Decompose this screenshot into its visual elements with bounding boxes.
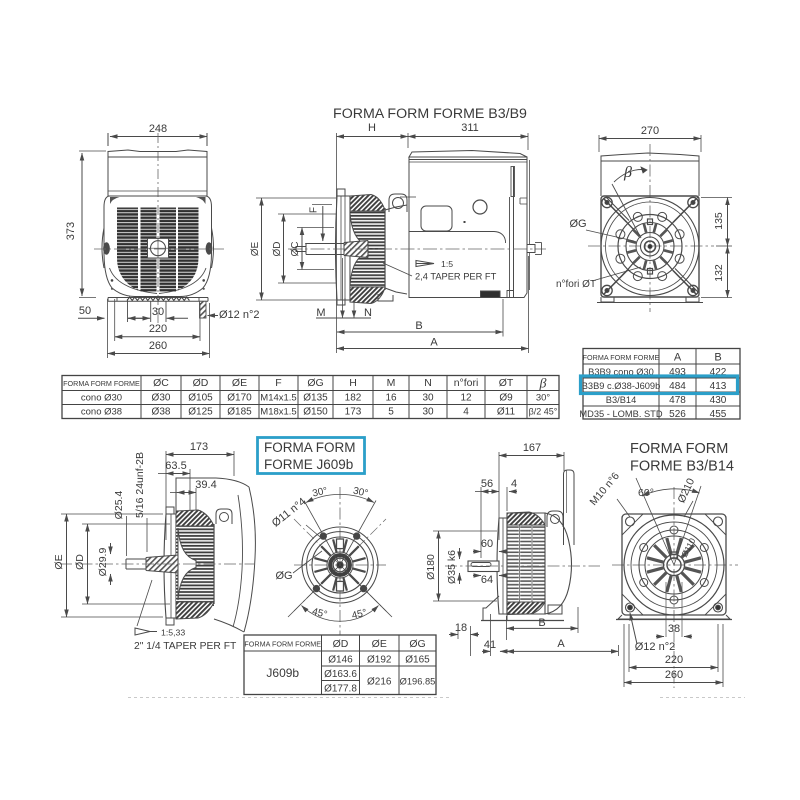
svg-text:260: 260 (665, 669, 683, 681)
svg-text:30°: 30° (536, 393, 551, 404)
svg-text:5/16 24unf-2B: 5/16 24unf-2B (134, 452, 146, 518)
svg-text:β: β (539, 377, 547, 392)
svg-text:FORMA FORM FORME: FORMA FORM FORME (63, 379, 140, 388)
svg-text:M: M (316, 307, 325, 319)
svg-text:270: 270 (641, 125, 659, 137)
svg-text:478: 478 (669, 395, 686, 406)
svg-text:J609b: J609b (266, 666, 299, 680)
svg-text:Ø38: Ø38 (152, 407, 171, 418)
svg-text:B: B (714, 352, 721, 364)
svg-text:A: A (430, 337, 438, 349)
svg-text:Ø135: Ø135 (303, 393, 328, 404)
svg-text:ØC: ØC (153, 377, 169, 389)
svg-text:167: 167 (523, 442, 541, 454)
svg-text:38: 38 (668, 623, 680, 635)
svg-text:M14x1.5: M14x1.5 (260, 393, 296, 404)
svg-text:FORMA FORM FORME: FORMA FORM FORME (583, 353, 660, 362)
svg-text:ØT: ØT (499, 377, 514, 389)
svg-text:Ø146: Ø146 (328, 655, 353, 666)
svg-text:63.5: 63.5 (165, 460, 186, 472)
svg-text:F: F (309, 207, 320, 213)
svg-text:ØG: ØG (569, 218, 586, 230)
svg-text:12: 12 (460, 393, 472, 404)
svg-text:ØE: ØE (250, 241, 261, 256)
svg-text:430: 430 (710, 395, 727, 406)
svg-text:Ø105: Ø105 (188, 393, 213, 404)
svg-text:H: H (368, 122, 376, 134)
svg-text:220: 220 (665, 654, 683, 666)
svg-text:18: 18 (455, 622, 467, 634)
svg-text:173: 173 (345, 407, 362, 418)
svg-text:39.4: 39.4 (195, 479, 216, 491)
svg-text:Ø150: Ø150 (303, 407, 328, 418)
svg-text:1:5,33: 1:5,33 (161, 628, 185, 638)
svg-text:n°fori ØT: n°fori ØT (556, 279, 596, 290)
svg-text:220: 220 (149, 323, 167, 335)
svg-text:64: 64 (481, 574, 493, 586)
svg-text:30: 30 (422, 407, 434, 418)
svg-text:2" 1/4 TAPER PER FT: 2" 1/4 TAPER PER FT (134, 641, 237, 652)
svg-text:455: 455 (710, 409, 727, 420)
svg-text:ØD: ØD (193, 377, 209, 389)
svg-text:5: 5 (388, 407, 394, 418)
svg-text:cono Ø38: cono Ø38 (81, 407, 122, 418)
svg-text:526: 526 (669, 409, 686, 420)
svg-text:173: 173 (190, 441, 208, 453)
svg-text:Ø192: Ø192 (367, 655, 392, 666)
svg-text:A: A (557, 638, 565, 650)
svg-text:MD35 - LOMB. STD: MD35 - LOMB. STD (579, 409, 662, 419)
svg-text:30: 30 (422, 393, 434, 404)
svg-text:ØE: ØE (232, 377, 247, 389)
svg-text:4: 4 (463, 407, 469, 418)
svg-text:ØD: ØD (74, 554, 86, 570)
svg-text:β/2 45°: β/2 45° (529, 407, 558, 417)
svg-text:Ø177.8: Ø177.8 (324, 684, 357, 695)
svg-text:N: N (364, 307, 372, 319)
svg-text:Ø180: Ø180 (425, 554, 437, 580)
svg-text:Ø30: Ø30 (152, 393, 171, 404)
svg-text:2,4 TAPER PER FT: 2,4 TAPER PER FT (415, 272, 497, 282)
svg-text:B: B (415, 320, 422, 332)
svg-text:FORMA FORM FORME: FORMA FORM FORME (244, 640, 321, 649)
svg-text:ØG: ØG (409, 638, 425, 650)
svg-text:B3B9 c.Ø38-J609b: B3B9 c.Ø38-J609b (582, 381, 661, 391)
svg-text:Ø163.6: Ø163.6 (324, 669, 357, 680)
svg-text:Ø12 n°2: Ø12 n°2 (635, 641, 675, 653)
svg-text:Ø196.85: Ø196.85 (400, 677, 436, 687)
svg-text:Ø9: Ø9 (499, 393, 513, 404)
svg-text:ØC: ØC (290, 242, 301, 257)
svg-text:311: 311 (461, 122, 479, 134)
svg-text:ØG: ØG (275, 570, 292, 582)
svg-text:Ø170: Ø170 (227, 393, 252, 404)
svg-text:182: 182 (345, 393, 362, 404)
svg-text:Ø185: Ø185 (227, 407, 252, 418)
svg-text:n°fori: n°fori (454, 377, 479, 389)
svg-text:ØG: ØG (307, 377, 323, 389)
svg-text:Ø35 k6: Ø35 k6 (446, 550, 458, 584)
svg-text:ØD: ØD (272, 242, 283, 257)
svg-text:16: 16 (385, 393, 397, 404)
svg-text:FORMA FORM: FORMA FORM (630, 441, 728, 457)
svg-text:Ø125: Ø125 (188, 407, 213, 418)
svg-text:Ø216: Ø216 (367, 677, 392, 688)
svg-text:FORMA FORM: FORMA FORM (264, 440, 356, 455)
svg-text:N: N (424, 377, 432, 389)
svg-text:FORME B3/B14: FORME B3/B14 (630, 459, 734, 475)
svg-text:ØE: ØE (53, 554, 65, 569)
svg-text:135: 135 (713, 212, 725, 230)
svg-text:A: A (674, 352, 682, 364)
svg-text:Ø29.9: Ø29.9 (97, 548, 109, 577)
svg-text:M: M (387, 377, 396, 389)
svg-text:4: 4 (511, 478, 517, 490)
svg-text:Ø25.4: Ø25.4 (113, 491, 125, 520)
svg-text:484: 484 (669, 381, 686, 392)
svg-text:F: F (275, 377, 281, 389)
svg-text:1:5: 1:5 (441, 259, 453, 269)
svg-text:FORME J609b: FORME J609b (264, 457, 353, 472)
svg-text:Ø12 n°2: Ø12 n°2 (219, 309, 259, 321)
svg-text:Ø165: Ø165 (405, 655, 430, 666)
svg-text:56: 56 (481, 478, 493, 490)
svg-text:60: 60 (481, 538, 493, 550)
svg-text:50: 50 (79, 305, 91, 317)
svg-text:132: 132 (713, 264, 725, 282)
svg-text:H: H (349, 377, 357, 389)
svg-text:373: 373 (65, 222, 77, 240)
svg-text:B3/B14: B3/B14 (606, 395, 637, 405)
svg-text:ØD: ØD (333, 638, 349, 650)
svg-text:M18x1.5: M18x1.5 (260, 407, 296, 418)
svg-text:30: 30 (152, 306, 164, 318)
svg-text:260: 260 (149, 340, 167, 352)
svg-text:B: B (538, 617, 545, 629)
svg-text:413: 413 (710, 381, 727, 392)
svg-text:cono Ø30: cono Ø30 (81, 393, 122, 404)
svg-text:FORMA FORM FORME B3/B9: FORMA FORM FORME B3/B9 (333, 106, 527, 122)
svg-text:ØE: ØE (372, 638, 387, 650)
svg-text:Ø11: Ø11 (497, 407, 516, 418)
